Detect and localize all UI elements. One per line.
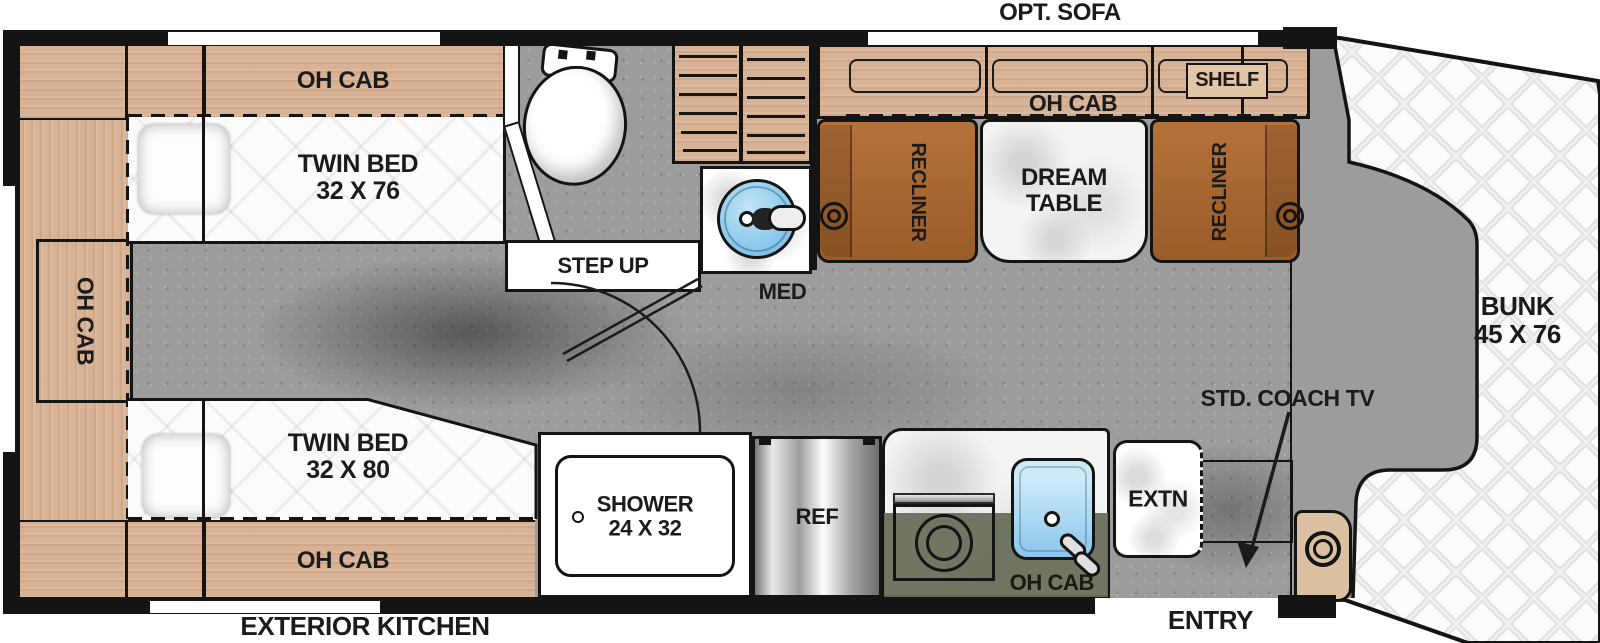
wall-stub-entry xyxy=(1278,595,1336,618)
exterior-kitchen-label: EXTERIOR KITCHEN xyxy=(205,612,525,640)
window-bedroom xyxy=(168,32,440,45)
opt-sofa-label: OPT. SOFA xyxy=(930,0,1190,26)
tv-pointer-arrowhead xyxy=(1237,541,1259,568)
med-label: MED xyxy=(740,280,825,304)
window-sofa xyxy=(868,32,1258,45)
entry-label: ENTRY xyxy=(1138,606,1283,634)
overlay-lines xyxy=(0,0,1600,643)
bed-bottom-outline xyxy=(128,400,536,520)
rv-floor-plan: OH CAB OH CAB OH CAB TWIN BED 32 X 76 TW… xyxy=(0,0,1600,643)
std-coach-tv-label: STD. COACH TV xyxy=(1180,386,1395,411)
bath-door-leaf xyxy=(563,279,702,361)
window-left xyxy=(0,186,15,452)
wall-stub-cab-top xyxy=(1283,27,1337,49)
bunk-label: BUNK 45 X 76 xyxy=(1435,292,1600,348)
tv-pointer-line xyxy=(1252,412,1289,548)
